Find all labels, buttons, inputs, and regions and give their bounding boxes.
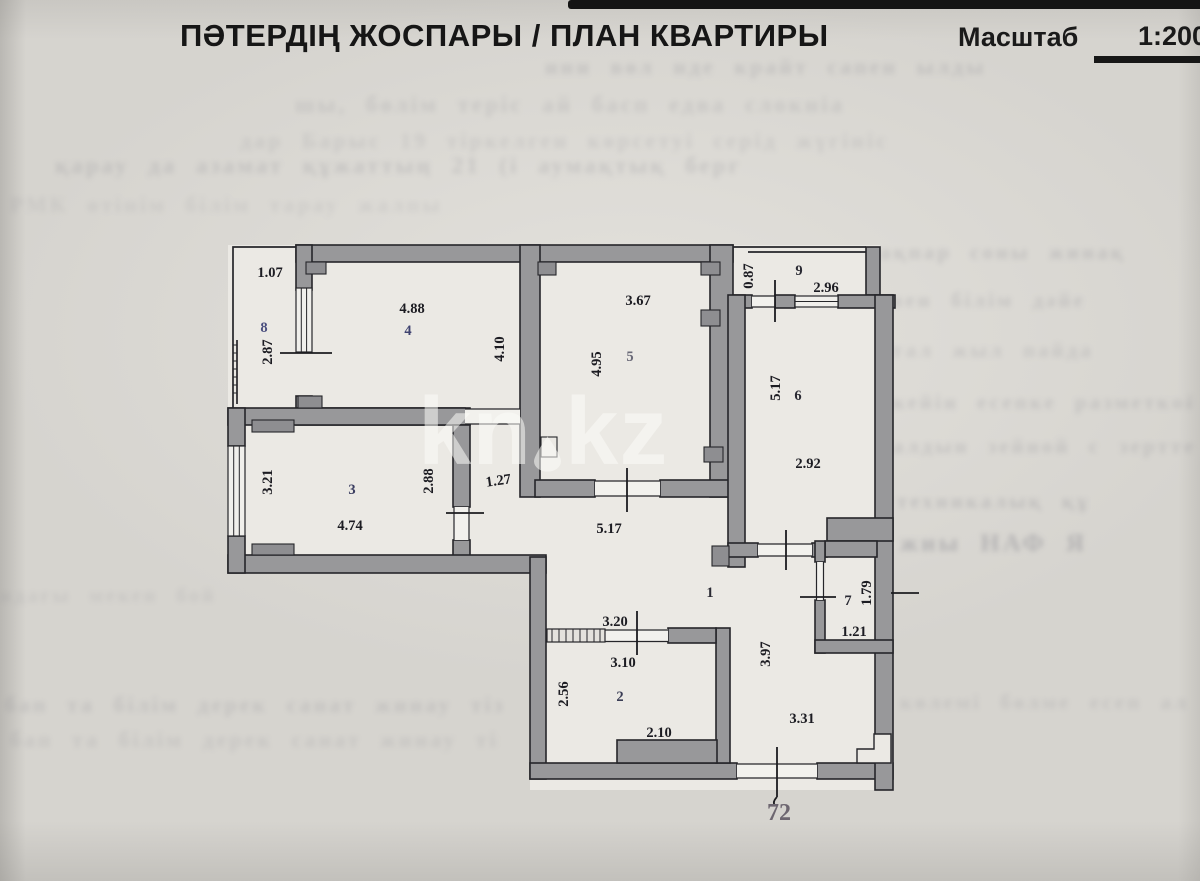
room-label-2: 2	[616, 689, 623, 705]
dim-balcony9-depth: 0.87	[741, 263, 757, 288]
room-label-5: 5	[626, 349, 633, 365]
apartment-footprint	[228, 245, 893, 790]
room-label-1: 1	[706, 585, 713, 601]
apartment-number: 72	[767, 800, 791, 826]
dim-balcony8-length: 2.87	[260, 339, 276, 364]
dim-balcony8-width: 1.07	[257, 265, 282, 281]
dim-room3-depth: 3.21	[260, 469, 276, 494]
dim-hall-depth: 3.97	[758, 641, 774, 666]
dim-room6-depth: 5.17	[768, 375, 784, 400]
room-label-4: 4	[404, 323, 411, 339]
dim-room7-depth: 1.79	[859, 580, 875, 605]
dim-hall-entry: 3.31	[789, 711, 814, 727]
dim-room3-right: 2.88	[421, 468, 437, 493]
dim-room2-width: 3.10	[610, 655, 635, 671]
floor-plan: 1.07 2.87 4.88 4.10 3.67 4.95 0.87 2.96 …	[0, 0, 1200, 881]
dim-room5-depth: 4.95	[589, 351, 605, 376]
dim-hall-width: 5.17	[596, 521, 621, 537]
dim-room7-width: 1.21	[841, 624, 866, 640]
room-label-8: 8	[260, 320, 267, 336]
room-label-7: 7	[844, 593, 851, 609]
dim-room2-opening: 3.20	[602, 614, 627, 630]
dim-room2-depth: 2.56	[556, 681, 572, 706]
scanned-floor-plan-page: ини вөл нде крайт сапен ылды шы, бөлім т…	[0, 0, 1200, 881]
room-label-6: 6	[794, 388, 801, 404]
room-label-9: 9	[795, 263, 802, 279]
dim-room4-width: 4.88	[399, 301, 424, 317]
dim-balcony9-width: 2.96	[813, 280, 838, 296]
dim-room5-width: 3.67	[625, 293, 650, 309]
room-label-3: 3	[348, 482, 355, 498]
dim-room6-width: 2.92	[795, 456, 820, 472]
dim-room2-block: 2.10	[646, 725, 671, 741]
dim-room3-width: 4.74	[337, 518, 362, 534]
dim-room4-depth: 4.10	[492, 336, 508, 361]
